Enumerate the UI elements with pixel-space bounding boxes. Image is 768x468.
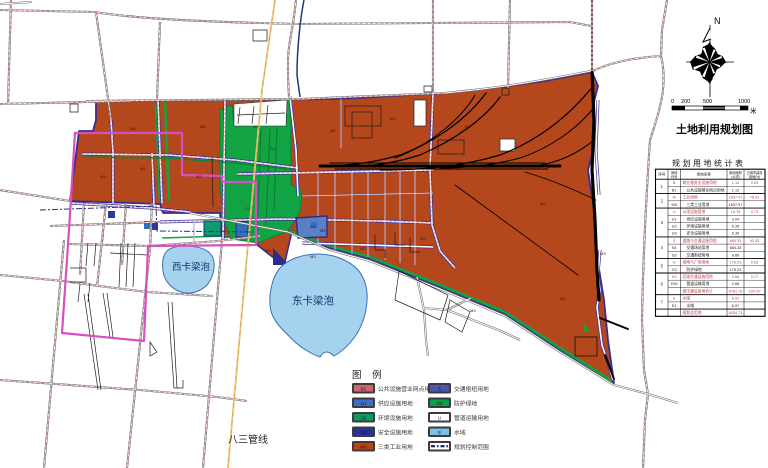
svg-text:6.97: 6.97 — [732, 297, 739, 301]
svg-text:M3: M3 — [140, 166, 146, 171]
svg-text:M3: M3 — [470, 308, 476, 313]
svg-text:176.23: 176.23 — [730, 261, 742, 265]
svg-text:200: 200 — [681, 99, 690, 105]
svg-text:U1: U1 — [672, 217, 677, 221]
svg-text:M3: M3 — [360, 445, 367, 450]
svg-text:M3: M3 — [420, 236, 426, 241]
svg-text:M3: M3 — [390, 116, 396, 121]
svg-text:690.33: 690.33 — [730, 239, 742, 243]
svg-text:U2: U2 — [361, 416, 367, 421]
svg-text:M3: M3 — [600, 251, 606, 256]
svg-text:8.80: 8.80 — [732, 253, 739, 257]
svg-text:1.12: 1.12 — [732, 181, 739, 185]
svg-text:公共设施营业网点用地: 公共设施营业网点用地 — [687, 187, 725, 192]
svg-text:公共设施营业网点用地: 公共设施营业网点用地 — [378, 385, 436, 393]
svg-text:0.73: 0.73 — [751, 210, 758, 214]
svg-text:G2: G2 — [245, 206, 251, 211]
svg-text:三类工业用地: 三类工业用地 — [378, 443, 413, 451]
svg-text:绿地与广场用地: 绿地与广场用地 — [683, 260, 710, 265]
svg-text:供应设施用地: 供应设施用地 — [378, 400, 413, 408]
svg-text:0.09: 0.09 — [751, 181, 758, 185]
svg-text:G2: G2 — [270, 146, 276, 151]
svg-text:B: B — [673, 181, 676, 185]
svg-text:6.39: 6.39 — [732, 232, 739, 236]
svg-text:H2: H2 — [672, 275, 677, 279]
svg-text:0.17: 0.17 — [751, 275, 758, 279]
svg-text:公用设施用地: 公用设施用地 — [683, 209, 706, 214]
svg-text:E1: E1 — [672, 304, 677, 308]
svg-text:2.66: 2.66 — [732, 282, 739, 286]
svg-text:防护绿地: 防护绿地 — [687, 267, 702, 272]
svg-text:代号: 代号 — [671, 174, 677, 179]
svg-text:100.00: 100.00 — [749, 289, 761, 293]
svg-text:U: U — [673, 210, 676, 214]
svg-text:M3: M3 — [310, 254, 316, 259]
svg-text:交通场站用地: 交通场站用地 — [687, 245, 710, 250]
svg-text:9.62: 9.62 — [751, 261, 758, 265]
svg-text:管道运输用地: 管道运输用地 — [454, 414, 489, 422]
svg-text:42.33: 42.33 — [750, 239, 760, 243]
svg-text:M3: M3 — [196, 174, 202, 179]
svg-text:用地(%): 用地(%) — [749, 174, 760, 179]
svg-text:G2: G2 — [253, 124, 259, 129]
svg-text:用地名称: 用地名称 — [697, 172, 712, 177]
svg-text:S: S — [673, 239, 676, 243]
svg-text:M3: M3 — [560, 296, 566, 301]
svg-text:商业服务业设施用地: 商业服务业设施用地 — [683, 180, 717, 185]
svg-text:水域: 水域 — [454, 429, 466, 437]
svg-text:500: 500 — [703, 99, 712, 105]
svg-text:水域: 水域 — [687, 303, 695, 308]
svg-text:交通枢纽用地: 交通枢纽用地 — [454, 385, 489, 393]
svg-text:M3: M3 — [540, 201, 546, 206]
svg-text:6.97: 6.97 — [732, 304, 739, 308]
svg-text:道路与交通设施用地: 道路与交通设施用地 — [683, 238, 717, 243]
svg-text:八三管线: 八三管线 — [228, 433, 268, 446]
svg-text:1000: 1000 — [738, 99, 750, 105]
svg-text:15.78: 15.78 — [731, 210, 741, 214]
svg-text:序号: 序号 — [658, 172, 666, 177]
svg-text:(公顷): (公顷) — [731, 174, 740, 179]
svg-text:U: U — [438, 416, 441, 421]
svg-text:1637.97: 1637.97 — [729, 203, 743, 207]
svg-text:米: 米 — [750, 106, 757, 115]
svg-text:供应设施用地: 供应设施用地 — [687, 216, 710, 221]
svg-text:安全设施用地: 安全设施用地 — [378, 429, 413, 437]
svg-text:M3: M3 — [360, 246, 366, 251]
svg-text:G2: G2 — [436, 401, 443, 406]
svg-text:城市建设用地合计: 城市建设用地合计 — [683, 288, 714, 293]
svg-text:防护绿地: 防护绿地 — [454, 400, 477, 408]
svg-text:环境设施用地: 环境设施用地 — [378, 414, 413, 422]
svg-text:区域交通设施用地: 区域交通设施用地 — [683, 274, 714, 279]
svg-text:M3: M3 — [265, 248, 271, 253]
svg-text:S3: S3 — [672, 253, 677, 257]
svg-text:G: G — [673, 261, 676, 265]
svg-text:U3: U3 — [672, 232, 677, 236]
svg-text:6781.76: 6781.76 — [729, 289, 743, 293]
svg-text:交通枢纽用地: 交通枢纽用地 — [687, 252, 710, 257]
svg-text:H24: H24 — [671, 282, 678, 286]
svg-text:N: N — [714, 16, 721, 26]
svg-text:M3: M3 — [200, 124, 206, 129]
svg-text:G2: G2 — [672, 268, 677, 272]
svg-text:西卡梁泡: 西卡梁泡 — [172, 261, 211, 273]
svg-text:2.66: 2.66 — [732, 275, 739, 279]
svg-text:规划总用地: 规划总用地 — [683, 310, 702, 315]
svg-text:M3: M3 — [320, 228, 326, 233]
svg-text:土地利用规划图: 土地利用规划图 — [676, 122, 753, 136]
svg-text:U1: U1 — [361, 401, 367, 406]
svg-text:图 例: 图 例 — [352, 369, 386, 381]
svg-text:规划控制范围: 规划控制范围 — [454, 443, 489, 451]
svg-text:M3: M3 — [100, 174, 106, 179]
svg-text:E: E — [673, 297, 676, 301]
svg-text:S: S — [438, 387, 441, 392]
svg-text:176.23: 176.23 — [730, 268, 742, 272]
svg-text:U3: U3 — [361, 430, 367, 435]
svg-text:环境设施用地: 环境设施用地 — [687, 224, 710, 229]
svg-text:B1: B1 — [361, 387, 367, 392]
svg-text:工业用地: 工业用地 — [683, 195, 698, 200]
svg-text:684.28: 684.28 — [730, 246, 742, 250]
svg-text:1637.97: 1637.97 — [729, 196, 743, 200]
svg-text:M3: M3 — [465, 124, 471, 129]
svg-text:安全设施用地: 安全设施用地 — [687, 231, 710, 236]
svg-text:S4: S4 — [672, 246, 677, 250]
svg-text:76.91: 76.91 — [750, 196, 760, 200]
svg-text:三类工业用地: 三类工业用地 — [687, 202, 710, 207]
svg-text:M3: M3 — [130, 126, 136, 131]
svg-text:管道运输用地: 管道运输用地 — [687, 281, 710, 286]
svg-text:水域: 水域 — [683, 296, 691, 301]
svg-text:规划用地统计表: 规划用地统计表 — [672, 158, 746, 168]
svg-text:6.35: 6.35 — [732, 225, 739, 229]
svg-text:东卡梁泡: 东卡梁泡 — [292, 294, 334, 307]
svg-text:S4: S4 — [310, 224, 316, 229]
svg-text:U2: U2 — [672, 225, 677, 229]
svg-text:M3: M3 — [330, 128, 336, 133]
svg-text:1.12: 1.12 — [732, 188, 739, 192]
svg-text:6034.73: 6034.73 — [729, 311, 743, 315]
svg-text:3.04: 3.04 — [732, 217, 739, 221]
svg-text:E: E — [438, 430, 441, 435]
svg-text:M: M — [673, 196, 676, 200]
svg-text:B1: B1 — [672, 188, 677, 192]
svg-text:M3: M3 — [672, 203, 677, 207]
svg-text:0: 0 — [671, 99, 674, 105]
